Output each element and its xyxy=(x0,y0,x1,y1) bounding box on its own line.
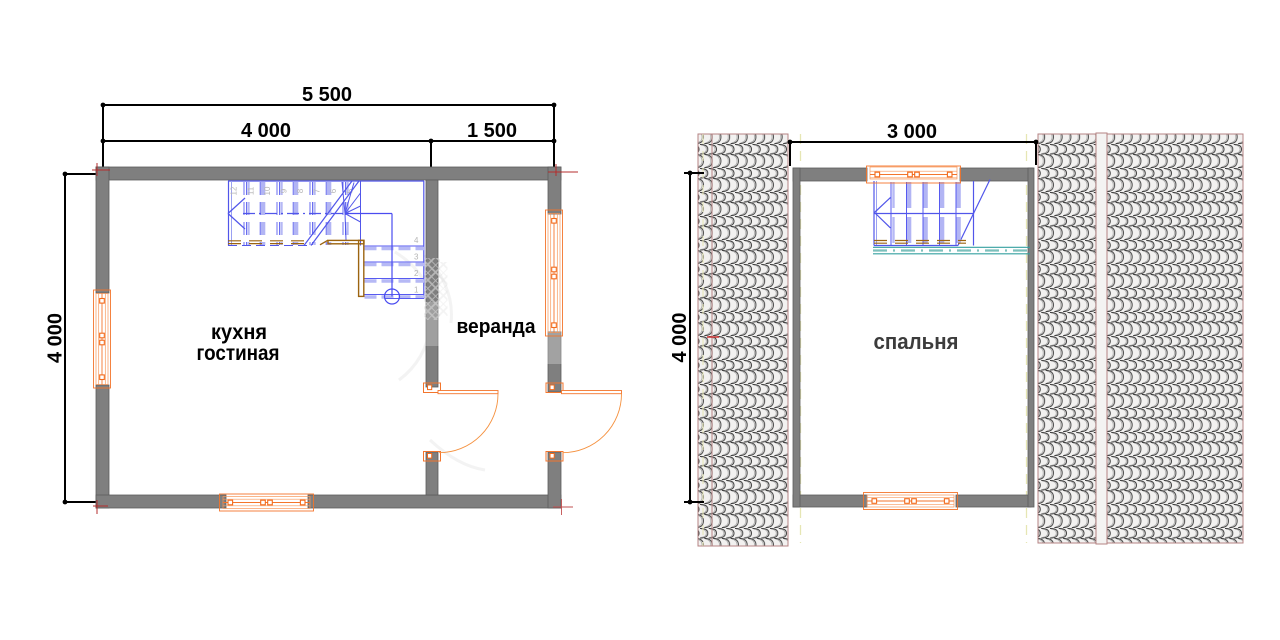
svg-text:7: 7 xyxy=(313,188,322,193)
svg-text:4 000: 4 000 xyxy=(669,312,691,362)
svg-text:9: 9 xyxy=(280,188,289,193)
svg-text:кухня: кухня xyxy=(211,321,267,344)
svg-text:10: 10 xyxy=(263,186,272,195)
svg-text:спальня: спальня xyxy=(874,329,959,354)
svg-text:12: 12 xyxy=(230,186,239,195)
svg-text:11: 11 xyxy=(247,186,256,195)
svg-text:веранда: веранда xyxy=(457,315,537,338)
svg-text:4 000: 4 000 xyxy=(241,120,291,142)
svg-text:4 000: 4 000 xyxy=(45,313,67,363)
svg-text:4: 4 xyxy=(414,236,419,245)
svg-text:1 500: 1 500 xyxy=(467,120,517,142)
svg-text:3 000: 3 000 xyxy=(887,121,937,143)
svg-text:гостиная: гостиная xyxy=(197,342,280,365)
svg-text:1: 1 xyxy=(414,286,419,295)
svg-text:2: 2 xyxy=(414,269,419,278)
svg-text:5 500: 5 500 xyxy=(302,84,352,106)
svg-text:6: 6 xyxy=(329,188,338,193)
svg-text:3: 3 xyxy=(414,253,419,262)
svg-text:8: 8 xyxy=(296,188,305,193)
